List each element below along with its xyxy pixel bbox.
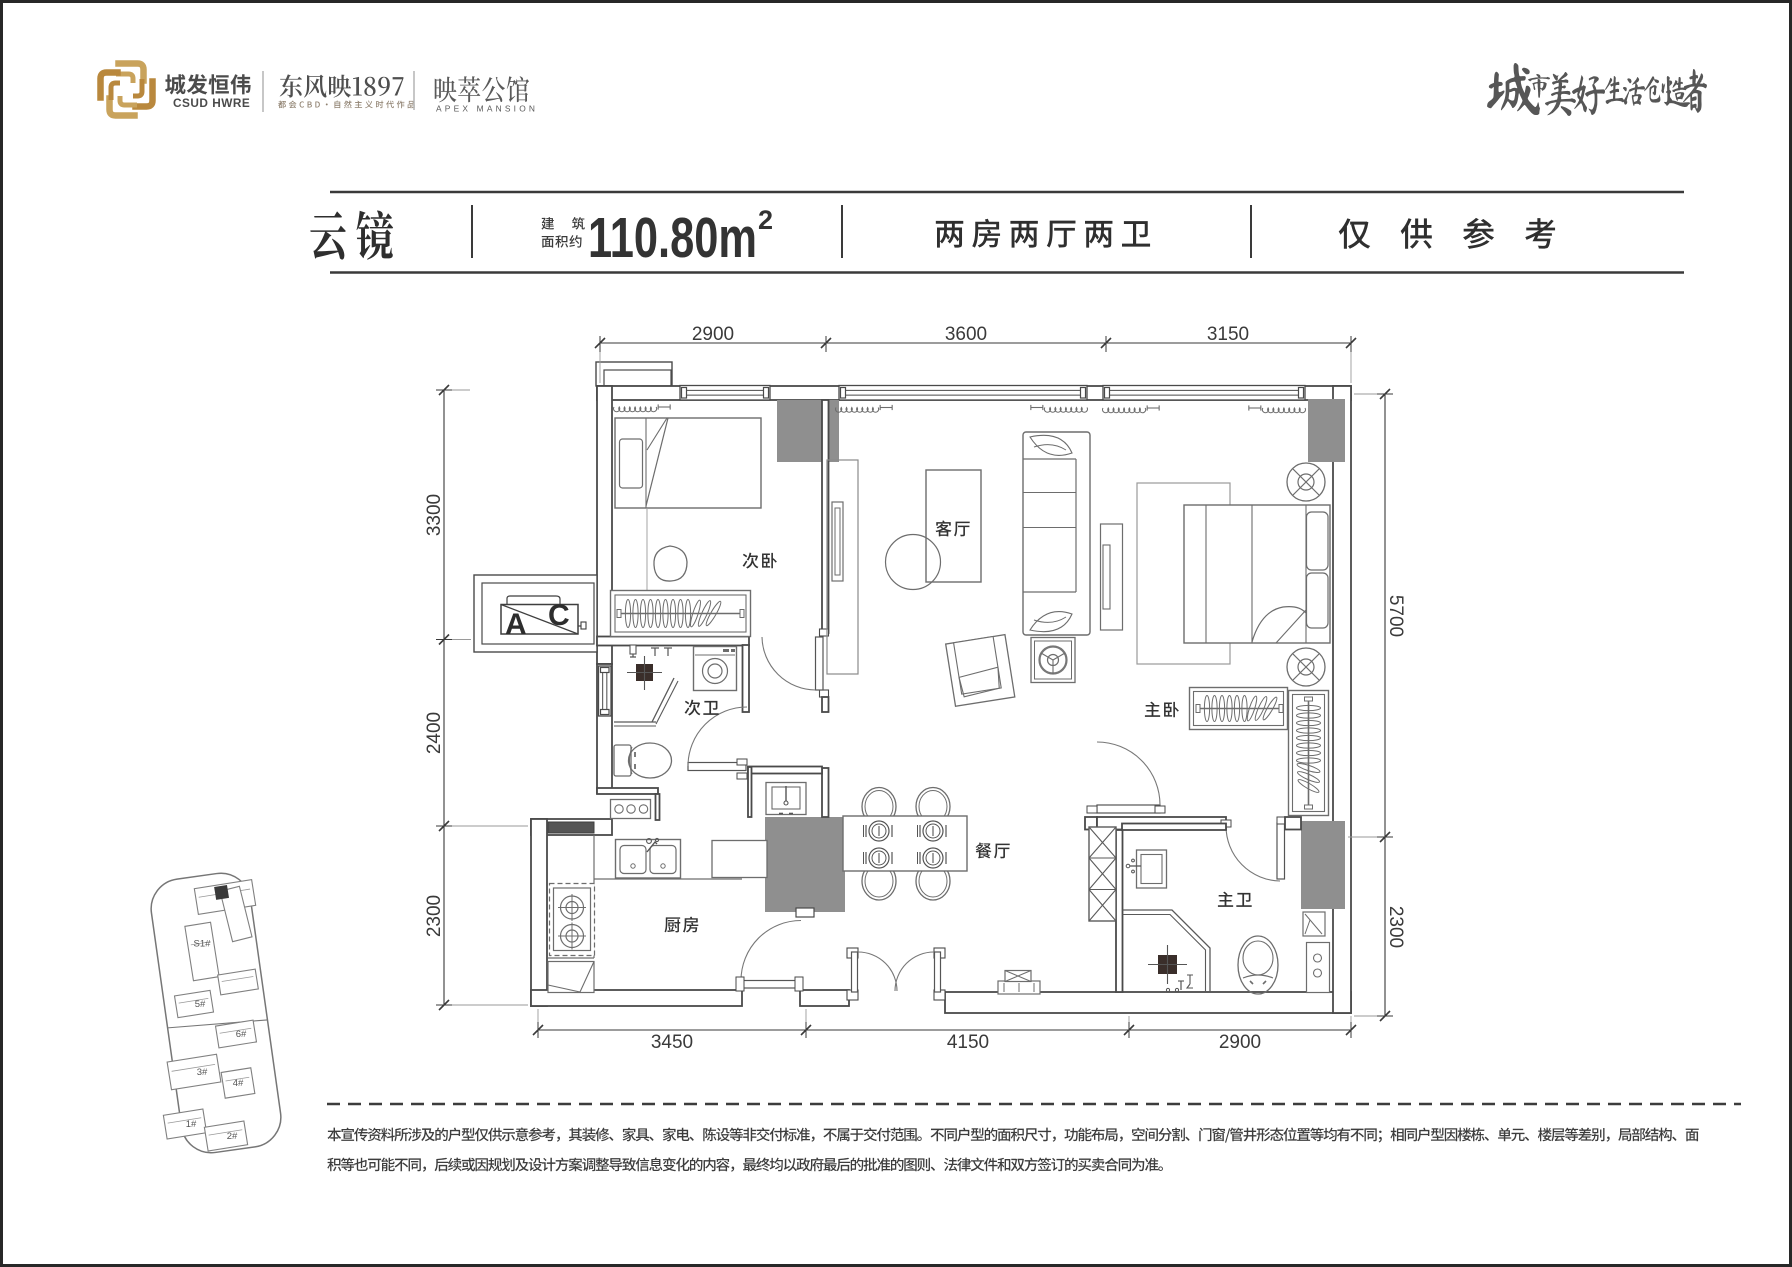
svg-text:2900: 2900 — [1219, 1032, 1261, 1053]
svg-text:2#: 2# — [227, 1131, 238, 1142]
svg-text:C: C — [548, 599, 570, 632]
svg-text:1#: 1# — [186, 1119, 197, 1130]
svg-text:CSUD HWRE: CSUD HWRE — [173, 96, 250, 110]
svg-text:5#: 5# — [195, 999, 206, 1010]
svg-text:3450: 3450 — [651, 1032, 693, 1053]
svg-text:2: 2 — [758, 205, 773, 235]
svg-text:110.80m: 110.80m — [588, 206, 757, 270]
svg-text:3300: 3300 — [424, 494, 445, 536]
svg-text:2900: 2900 — [692, 324, 734, 345]
svg-text:4#: 4# — [233, 1078, 244, 1089]
svg-text:3#: 3# — [197, 1067, 208, 1078]
svg-text:6#: 6# — [236, 1029, 247, 1040]
svg-text:S1#: S1# — [194, 939, 212, 950]
svg-text:2400: 2400 — [424, 712, 445, 754]
svg-text:4150: 4150 — [947, 1032, 989, 1053]
svg-text:3150: 3150 — [1207, 324, 1249, 345]
svg-text:3600: 3600 — [945, 324, 987, 345]
svg-text:2300: 2300 — [424, 895, 445, 937]
svg-text:2300: 2300 — [1385, 906, 1406, 948]
svg-text:5700: 5700 — [1385, 595, 1406, 637]
svg-text:A: A — [505, 608, 527, 641]
svg-text:APEX MANSION: APEX MANSION — [436, 104, 538, 114]
